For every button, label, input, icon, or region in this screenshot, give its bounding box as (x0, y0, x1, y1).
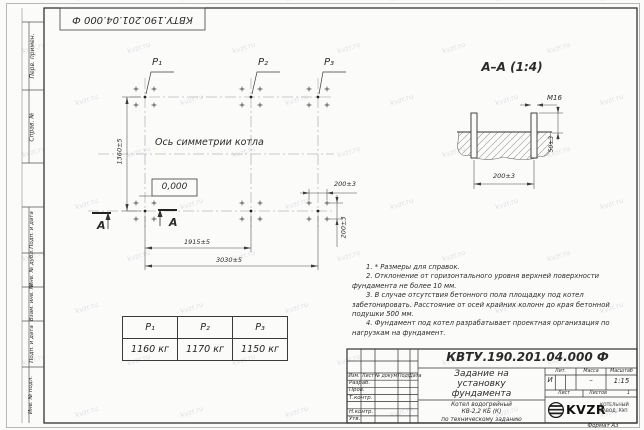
margin-label-podp-data-1: Подп. и дата (30, 207, 44, 253)
point-label-p3: P₃ (324, 58, 334, 69)
load-table-header-row: P₁ P₂ P₃ (123, 317, 288, 339)
boiler-axis-caption: Ось симметрии котла (155, 138, 264, 148)
role-tkontr: Т.контр. (349, 396, 372, 402)
dim-protrusion-50: 50±3 (549, 124, 555, 164)
thread-label-m16: М16 (547, 95, 562, 102)
role-razrab: Разраб. (349, 381, 370, 387)
doc-subtitle-line3: по техническому заданию (420, 417, 543, 423)
scale-label: Масштаб (606, 369, 637, 374)
kvzr-logo-icon (549, 403, 564, 418)
role-prov: Пров. (349, 388, 365, 394)
company-name-line1: КОТЕЛЬНЫЙ (600, 404, 629, 409)
scale-value: 1:15 (606, 378, 637, 385)
notes-block: 1. * Размеры для справок. 2. Отклонение … (352, 263, 634, 338)
mass-label: Масса (576, 369, 606, 374)
point-label-p2: P₂ (258, 58, 268, 69)
point-label-p1: P₁ (152, 58, 162, 69)
margin-label-podp-data-2: Подп. и дата (30, 321, 44, 367)
mass-value: – (576, 377, 606, 384)
note-4: 4. Фундамент под котел разрабатывает про… (352, 319, 634, 338)
dim-span-1915: 1915±5 (177, 239, 217, 246)
top-stamp-doc-number: КВТУ.190.201.04.000 Ф (60, 8, 205, 30)
drawing-sheet: kvzr.rukvzr.rukvzr.rukvzr.rukvzr.rukvzr.… (0, 0, 644, 430)
dim-offset-200h: 200±3 (334, 181, 356, 188)
load-table: P₁ P₂ P₃ 1160 кг 1170 кг 1150 кг (122, 316, 288, 361)
section-mark-a-right: А (169, 217, 178, 229)
format-label: Формат А3 (580, 424, 626, 430)
role-utv: Утв. (349, 417, 360, 423)
anchor-stud-right (531, 113, 537, 158)
load-table-value-row: 1160 кг 1170 кг 1150 кг (123, 339, 288, 361)
margin-label-sprav-no: Справ. № (30, 90, 44, 163)
dim-bolt-spacing-200: 200±3 (484, 173, 524, 180)
doc-title-line3: фундамента (420, 390, 543, 399)
load-header-p1: P₁ (123, 317, 178, 339)
section-title: А–А (1:4) (477, 61, 547, 74)
section-mark-a-left: А (97, 220, 106, 232)
col-ndokum: № докум. (375, 374, 398, 379)
lit-value: И (545, 377, 555, 384)
anchor-stud-left (471, 113, 477, 158)
load-header-p3: P₃ (233, 317, 288, 339)
note-3: 3. В случае отсутствия бетонного пола пл… (352, 291, 634, 319)
margin-label-inv-podl: Инв. № подл. (29, 367, 43, 423)
lit-label: Лит. (545, 369, 576, 374)
dim-span-3030: 3030±5 (209, 257, 249, 264)
plan-axes (88, 78, 334, 230)
note-2: 2. Отклонение от горизонтального уровня … (352, 272, 634, 291)
dim-height-1360: 1360±5 (117, 126, 124, 176)
col-izm: Изм. (347, 374, 361, 379)
note-1: 1. * Размеры для справок. (352, 263, 634, 272)
drawing-canvas (0, 0, 644, 430)
sheets-value: 1 (627, 391, 630, 396)
margin-label-inv-dubl: Инв. № дубл. (30, 253, 44, 287)
margin-label-perv-primen: Перв. примен. (30, 22, 44, 90)
dim-offset-200v: 200±3 (341, 207, 348, 247)
doc-subtitle-line2: КВ-2,2 КБ (К) (420, 409, 543, 415)
elevation-label: 0,000 (152, 179, 197, 196)
point-leaders (146, 72, 346, 94)
doc-subtitle-line1: Котел водогрейный (420, 402, 543, 408)
load-value-p2: 1170 кг (178, 339, 233, 361)
sheet-label: Лист (545, 391, 583, 396)
company-name-line2: ЗАВОД, РЭП (600, 410, 628, 415)
sheets-label: Листов (589, 391, 607, 396)
col-list: Лист (361, 374, 375, 379)
load-header-p2: P₂ (178, 317, 233, 339)
margin-label-vzam-inv: Взам. инв. № (30, 287, 44, 321)
col-data: Дата (409, 374, 418, 379)
load-value-p1: 1160 кг (123, 339, 178, 361)
title-block-doc-number: КВТУ.190.201.04.000 Ф (420, 351, 635, 364)
role-nkontr: Н.контр. (349, 410, 373, 416)
load-value-p3: 1150 кг (233, 339, 288, 361)
